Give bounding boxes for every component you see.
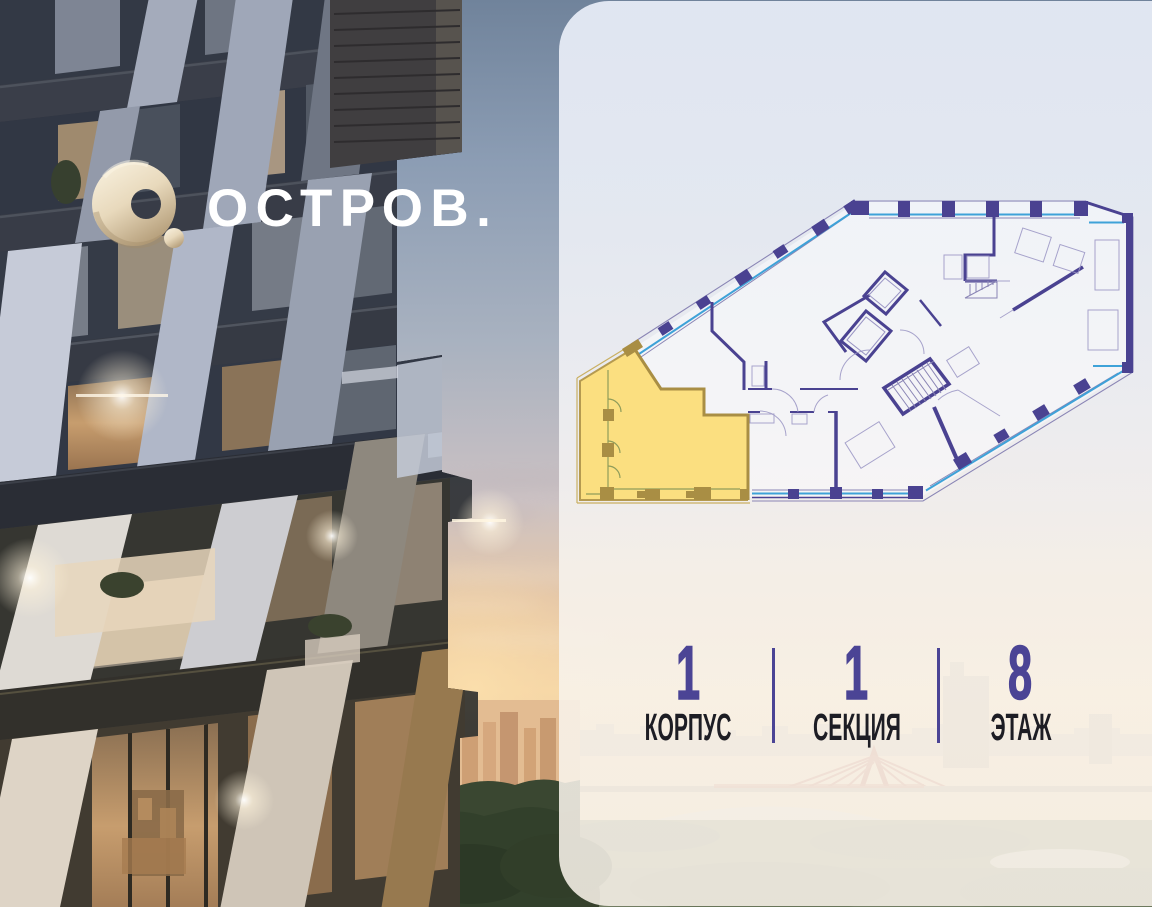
svg-text:ОСТРОВ.: ОСТРОВ. — [207, 179, 498, 238]
